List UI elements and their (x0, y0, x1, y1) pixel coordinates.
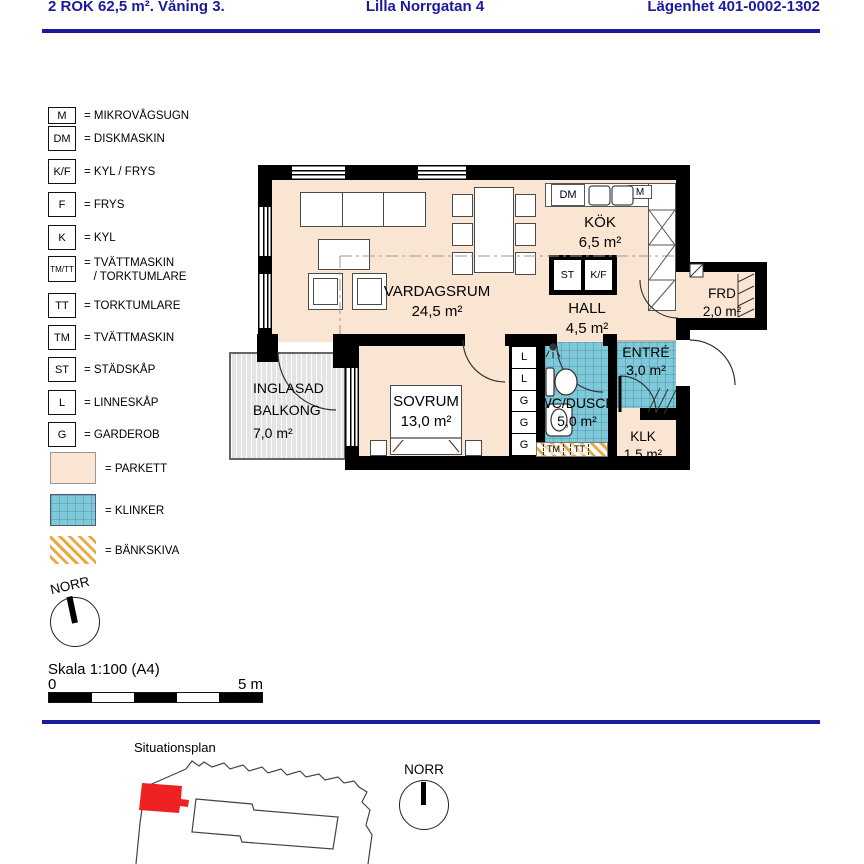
north-label: NORR (49, 574, 91, 598)
wall-segment (258, 256, 272, 274)
dishwasher: DM (551, 184, 585, 206)
wall-segment (345, 165, 418, 180)
legend-symbol-linen-closet: L (48, 390, 76, 415)
label-kok: KÖK6,5 m² (579, 213, 622, 252)
microwave: M (628, 185, 652, 199)
cleaning-fridge-unit: ST K/F (549, 255, 617, 295)
legend-label: = BÄNKSKIVA (105, 544, 179, 558)
window (258, 274, 272, 328)
legend-label: = TVÄTTMASKIN / TORKTUMLARE (84, 256, 186, 285)
footer-divider (42, 720, 820, 724)
window (418, 165, 466, 180)
legend-label: = KYL / FRYS (84, 165, 155, 179)
legend-symbol-dryer: TT (48, 293, 76, 318)
wall-frd-top (676, 262, 767, 272)
armchair (308, 273, 343, 310)
coffee-table (318, 239, 370, 270)
closet-cell: G (512, 434, 536, 455)
north-label-siteplan: NORR (404, 762, 444, 777)
label-klk: KLK1,5 m² (624, 428, 662, 463)
sofa (300, 192, 426, 227)
wall-entre-klk (640, 408, 676, 420)
closet-cell: G (512, 391, 536, 413)
legend-symbol-washer-dryer: TM/TT (48, 256, 76, 282)
legend-label: = FRYS (84, 198, 124, 212)
header-address: Lilla Norrgatan 4 (366, 0, 484, 15)
nightstand (370, 440, 387, 456)
scale-end: 5 m (238, 676, 263, 693)
armchair (352, 273, 387, 310)
header-apartment-type: 2 ROK 62,5 m². Våning 3. (48, 0, 225, 15)
window (292, 165, 345, 180)
cleaning-closet: ST (554, 260, 581, 290)
floorplan-page: 2 ROK 62,5 m². Våning 3. Lilla Norrgatan… (0, 0, 864, 864)
wall-balcony-jamb (333, 334, 359, 368)
dining-chair (452, 252, 473, 275)
legend-label: = TORKTUMLARE (84, 299, 180, 313)
legend-label: = KYL (84, 231, 116, 245)
scale-zero: 0 (48, 676, 56, 693)
legend-swatch-bankskiva (50, 536, 96, 564)
legend-symbol-fridge-freezer: K/F (48, 159, 76, 184)
closet-cell: G (512, 412, 536, 434)
closet-cell: L (512, 369, 536, 391)
dining-chair (515, 252, 536, 275)
header-divider (42, 29, 820, 33)
legend-symbol-cleaning-closet: ST (48, 357, 76, 382)
label-balkong: INGLASADBALKONG7,0 m² (253, 377, 324, 444)
wall-segment (466, 165, 690, 180)
dining-chair (515, 223, 536, 246)
legend-label: = KLINKER (105, 504, 164, 518)
legend-label: = PARKETT (105, 462, 167, 476)
dining-chair (515, 194, 536, 217)
scale-text: Skala 1:100 (A4) (48, 661, 160, 678)
scale-bar (48, 692, 263, 703)
wall-segment (345, 446, 359, 470)
closet-column: L L G G G (511, 346, 537, 456)
wall-segment (345, 334, 465, 346)
legend-symbol-washer: TM (48, 325, 76, 350)
legend-label: = DISKMASKIN (84, 132, 165, 146)
legend-label: = MIKROVÅGSUGN (84, 109, 189, 123)
legend-symbol-wardrobe: G (48, 422, 76, 447)
label-frd: FRD2,0 m² (703, 285, 741, 320)
header-apartment-id: Lägenhet 401-0002-1302 (647, 0, 820, 15)
closet-cell: L (512, 347, 536, 369)
kitchen-corner-counter (648, 183, 676, 311)
legend-swatch-klinker (50, 494, 96, 526)
window (258, 207, 272, 256)
laundry-counter: TM TT (536, 442, 608, 457)
label-sovrum: SOVRUM13,0 m² (393, 392, 459, 431)
dining-table (474, 187, 514, 273)
wall-segment (258, 165, 272, 207)
fridge-freezer: K/F (585, 260, 612, 290)
legend-symbol-fridge: K (48, 225, 76, 250)
wall-segment (676, 318, 690, 340)
north-needle-siteplan (421, 782, 426, 805)
siteplan-map (100, 753, 410, 864)
wall-balcony-jamb (257, 334, 278, 362)
wall-segment (676, 165, 690, 272)
window-bedroom-balcony (345, 368, 359, 446)
dining-chair (452, 194, 473, 217)
label-vardagsrum: VARDAGSRUM24,5 m² (384, 282, 490, 321)
label-wc: WC/DUSCH5,0 m² (539, 394, 616, 430)
legend-symbol-microwave: M (48, 107, 76, 124)
washing-machine: TM (543, 444, 564, 455)
legend-swatch-parkett (50, 452, 96, 484)
legend-symbol-dishwasher: DM (48, 126, 76, 151)
legend-label: = GARDEROB (84, 428, 160, 442)
siteplan-apartment-marker (139, 783, 189, 813)
label-hall: HALL4,5 m² (566, 299, 609, 338)
legend-symbol-freezer: F (48, 192, 76, 217)
siteplan-courtyard (192, 799, 338, 849)
wall-segment (505, 334, 557, 346)
legend-label: = STÄDSKÅP (84, 363, 155, 377)
dining-chair (452, 223, 473, 246)
legend-label: = TVÄTTMASKIN (84, 331, 174, 345)
floor-frd-doorway (676, 272, 690, 318)
legend-label: = LINNESKÅP (84, 396, 158, 410)
nightstand (465, 440, 482, 456)
tumble-dryer: TT (570, 444, 589, 455)
label-entre: ENTRÉ3,0 m² (622, 343, 669, 379)
door-arc-entry (690, 340, 735, 385)
